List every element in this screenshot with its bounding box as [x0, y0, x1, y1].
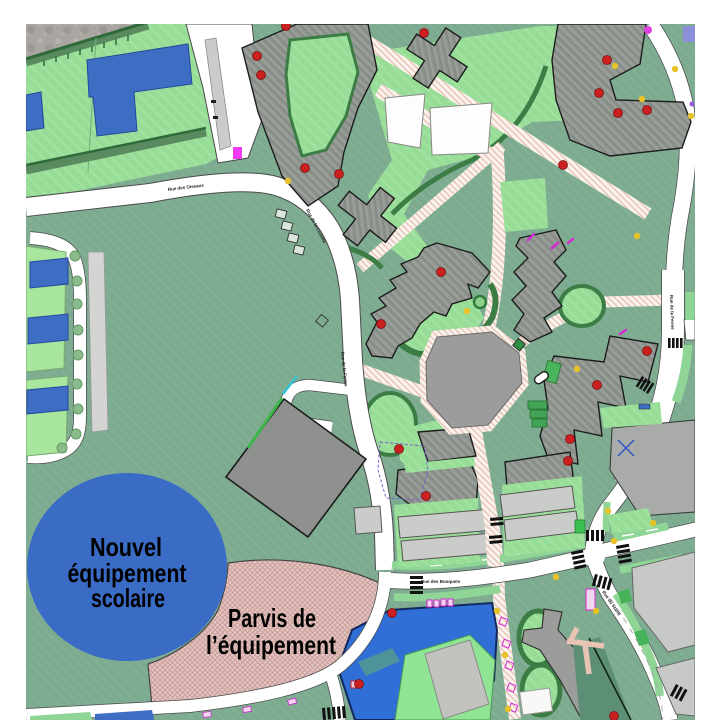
svg-text:Parvis de: Parvis de — [228, 603, 316, 633]
svg-text:Rue des Bosquets: Rue des Bosquets — [421, 579, 461, 584]
svg-text:l’équipement: l’équipement — [206, 630, 336, 660]
svg-text:scolaire: scolaire — [91, 583, 165, 613]
